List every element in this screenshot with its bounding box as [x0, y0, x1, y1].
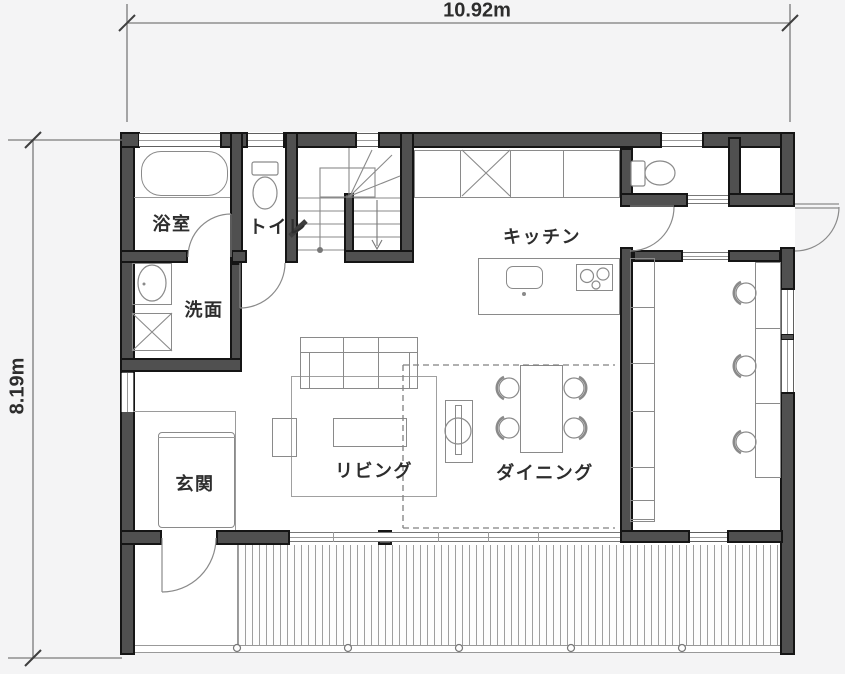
desk-chairs: [734, 282, 756, 453]
dimension-ticks: [25, 15, 798, 666]
room-label-toilet: トイレ: [249, 213, 308, 239]
deck-posts: [234, 645, 686, 652]
dimension-width-label: 10.92m: [443, 0, 511, 23]
toilet2-fixture: [631, 161, 675, 186]
front-door: [795, 204, 839, 251]
washbasin: [138, 265, 166, 301]
dimension-height-label: 8.19m: [7, 358, 30, 415]
deck-post: [679, 645, 686, 652]
toilet-fixture: [252, 162, 278, 209]
room-label-living: リビング: [335, 457, 413, 483]
plan-overlay: [0, 0, 845, 674]
refrigerator: [462, 150, 510, 196]
dining-chair: [497, 417, 519, 439]
room-label-washroom: 洗面: [185, 296, 224, 322]
bathroom-door: [188, 214, 231, 257]
dashed-outline: [403, 365, 615, 528]
dining-chairs: [497, 377, 586, 439]
toilet2-door: [630, 206, 674, 251]
cooktop-burners: [581, 268, 610, 289]
desk-chair: [734, 431, 756, 453]
entrance-door: [162, 538, 216, 592]
washroom-hall-door: [240, 263, 285, 308]
room-label-bathroom: 浴室: [153, 210, 192, 236]
room-label-kitchen: キッチン: [503, 223, 581, 249]
stair-start-dot: [317, 247, 323, 253]
deck-post: [456, 645, 463, 652]
dining-chair: [564, 417, 586, 439]
desk-chair: [734, 355, 756, 377]
room-label-dining: ダイニング: [496, 459, 594, 485]
washing-machine-cross: [132, 313, 172, 351]
deck-post: [345, 645, 352, 652]
deck-post: [568, 645, 575, 652]
room-label-entrance: 玄関: [176, 470, 215, 496]
sink-tap: [522, 292, 526, 296]
column-unit-circle: [445, 418, 471, 444]
dimension-lines: [8, 4, 790, 658]
dining-chair: [564, 377, 586, 399]
deck-post: [234, 645, 241, 652]
dining-chair: [497, 377, 519, 399]
floor-plan: 10.92m 8.19m 浴室 トイレ 洗面 キッチン 玄関 リビング ダイニン…: [0, 0, 845, 674]
desk-chair: [734, 282, 756, 304]
